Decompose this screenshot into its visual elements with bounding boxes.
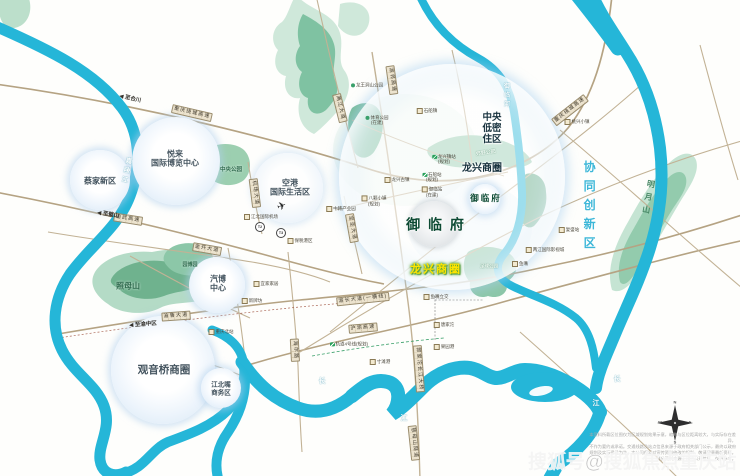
label-changjiang-2: 江 [401, 415, 408, 423]
poi-metro-line4-icon [330, 342, 335, 347]
poi-shichuan-station: 石船站 (规划) [423, 172, 442, 182]
poi-xinpaifang-icon [242, 298, 248, 304]
poi-bake-town: 八颗小镇 (规划) [362, 195, 387, 206]
poi-longwangdong-park-icon [351, 83, 355, 87]
poi-yuzui: 鱼嘴 [512, 261, 528, 267]
compass-w: W [658, 421, 662, 426]
label-zhaomushan: 照母山 [116, 281, 140, 290]
label-yulinfu-small: 御临府 [470, 193, 502, 203]
airport-t3-badge: T3 [276, 228, 286, 238]
poi-fusheng-station: 复盛站 [559, 227, 580, 233]
poi-cuntan-port: 寸滩港 [370, 359, 391, 365]
poi-sports-park-icon [366, 116, 370, 120]
poi-guoyuan-port-icon [434, 344, 440, 350]
poi-longxingzhen-station: 龙兴镇站 (规划) [432, 154, 456, 164]
label-jiangbei-airport-icon [244, 214, 250, 220]
poi-chongqing-north-station: 重庆北站 [209, 329, 234, 335]
poi-shichuan-town: 石船镇 [417, 108, 438, 114]
poi-longxingzhen-station-icon [432, 154, 437, 159]
disclaimer-line-1: 本资料所载区位图仅为区域规划效果示意，缩略与区位距离较大，与实际存在差异， [586, 432, 736, 444]
label-synergy-zone: 协同创新区 [582, 161, 596, 256]
label-central-lowdensity: 中央 低密 住区 [482, 112, 501, 146]
mountain-tongluoshan-arm [338, 2, 369, 35]
poi-bake-town-icon [362, 195, 368, 201]
poi-tangjiatuo: 唐家沱 [434, 322, 455, 328]
road-haier: 海尔路 [290, 338, 300, 361]
poi-longwangdong-park: 龙王洞山公园 [351, 82, 383, 87]
label-yuanboyuan: 园博园 [182, 263, 197, 269]
river-jialing-main [0, 26, 138, 475]
label-changjiang-1: 长 [319, 378, 326, 386]
poi-tangjiatuo-icon [434, 322, 440, 328]
label-jiangbei-airport: 江北国际机场 [244, 214, 278, 220]
poi-bonded-port-icon [288, 238, 294, 244]
label-qibo: 汽博 中心 [210, 275, 226, 294]
label-central-park: 中央公园 [220, 167, 242, 173]
poi-chongqing-north-station-icon [209, 329, 215, 335]
poi-film-city: 两江国际影视城 [526, 247, 565, 253]
sohu-watermark: 搜狐号@搜狐焦点重庆站 [528, 447, 737, 474]
poi-film-city-icon [526, 247, 532, 253]
poi-yuzui-interchange-icon [424, 294, 430, 300]
poi-ikea: 宜家家居 [254, 281, 279, 287]
poi-bonded-port: 保税港区 [288, 238, 313, 244]
poi-shichuan-town-icon [417, 108, 423, 114]
airport-t2-badge: T2 [255, 222, 265, 232]
poi-guoyuan-port: 果园港 [434, 344, 455, 350]
poi-longxing-ancient-town-icon [385, 177, 391, 183]
label-yuelai-expo: 悦来 国际博览中心 [151, 150, 199, 169]
label-yulinfu-main: 御 临 府 [406, 217, 466, 234]
poi-yuzui-icon [512, 261, 518, 267]
poi-yulin-station: 御临站 (在建) [422, 186, 443, 197]
label-guanyinqiao: 观音桥商圈 [138, 364, 191, 376]
label-football-park: 足球公园 [480, 263, 498, 268]
label-changjiang-3: 长 [614, 376, 621, 384]
road-east-3 [700, 45, 738, 180]
poi-taoxing-town-icon [565, 119, 571, 125]
mountain-topleft [0, 0, 30, 28]
label-caijia: 蔡家新区 [84, 176, 116, 185]
poi-shichuan-station-icon [423, 172, 428, 177]
poi-ikea-icon [254, 281, 260, 287]
poi-xinpaifang: 新牌坊 [242, 298, 263, 304]
label-longxing-highlight: 龙兴商圈 [410, 264, 462, 277]
poi-taoxing-town: 桃兴小镇 [565, 119, 590, 125]
poi-cuntan-port-icon [370, 359, 376, 365]
poi-zhonghan-park: 中韩产业园 [326, 206, 356, 212]
poi-sports-park: 体育公园 (在建) [366, 115, 389, 125]
map-canvas: 中央 低密 住区龙兴商圈协同创新区御 临 府御临府龙兴商圈蔡家新区悦来 国际博览… [0, 0, 740, 476]
label-konggang: 空港 国际生活区 [270, 179, 310, 198]
compass-e: E [689, 421, 692, 426]
label-longxing-district: 龙兴商圈 [462, 163, 502, 175]
river-changjiang-west [242, 362, 352, 411]
poi-yulin-station-icon [422, 186, 428, 192]
poi-zhonghan-park-icon [326, 206, 332, 212]
label-jiangbeizui: 江北嘴 商务区 [211, 381, 231, 396]
poi-metro-line4: 轨道4号线(规划) [330, 341, 368, 346]
longxing-main-circle [339, 64, 565, 290]
poi-fusheng-station-icon [559, 227, 565, 233]
compass-n: N [674, 401, 677, 406]
poi-longxing-ancient-town: 龙兴古镇 [385, 177, 410, 183]
label-changjiang-4: 江 [593, 400, 600, 408]
label-yulinhe: 御临河 [501, 83, 508, 110]
poi-yuzui-interchange: 鱼嘴立交 [424, 294, 449, 300]
